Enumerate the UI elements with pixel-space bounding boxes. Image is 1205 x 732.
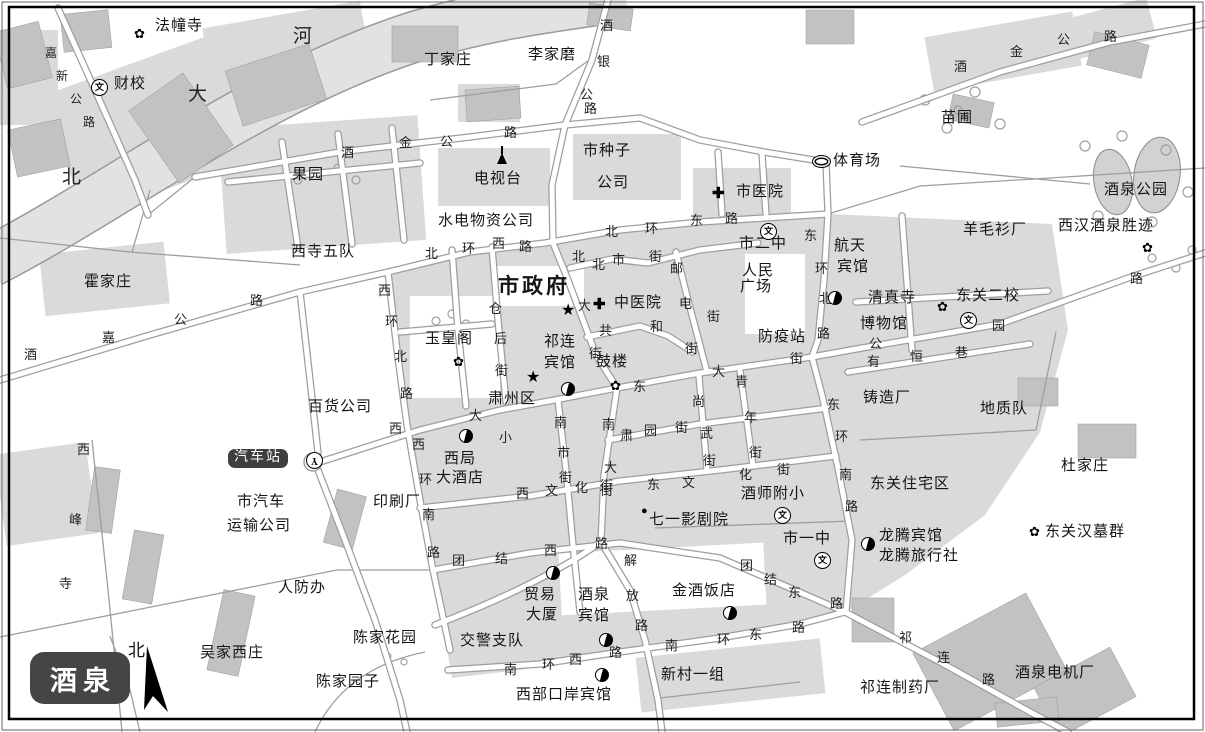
street-canghoujie-char: 街 — [495, 364, 508, 377]
street-jiujia-highway-char: 酒 — [24, 348, 37, 361]
street-xihuan-nanlu-char: 环 — [419, 473, 432, 486]
street-xidajie-char: 西 — [389, 422, 402, 435]
street-jiujin-highway-ne-char: 金 — [1010, 45, 1023, 58]
street-beidahe-river-char: 大 — [188, 85, 207, 104]
jiuquan-park-label: 酒泉公园 — [1104, 183, 1168, 198]
street-xihuan-nanlu-char: 路 — [427, 546, 440, 559]
street-xiwenhuajie-char: 化 — [575, 481, 588, 494]
epidemic-station-label: 防疫站 — [758, 330, 806, 345]
street-jiaxin-highway-char: 新 — [56, 70, 68, 82]
jinjiu-restaurant-label: 金酒饭店 — [672, 584, 736, 599]
street-shangwujie-char: 街 — [703, 454, 716, 467]
map-title: 酒泉 — [44, 659, 116, 698]
street-xihuan-nanlu-char: 南 — [422, 508, 435, 521]
street-youhengxiang-char: 恒 — [910, 350, 923, 363]
yuhuang-pavilion-flower-icon: ✿ — [453, 355, 464, 368]
hangtian-hotel-label: 宾馆 — [837, 260, 869, 275]
street-jiujin-highway-ne-char: 公 — [1057, 33, 1070, 46]
street-beihuan-donglu-char: 环 — [645, 222, 658, 235]
street-youdianjie-char: 街 — [707, 310, 720, 323]
fazhuang-temple-label: 法幢寺 — [155, 19, 203, 34]
street-xiwenhuajie-char: 文 — [545, 484, 558, 497]
museum-label: 博物馆 — [860, 317, 908, 332]
guoyuan-orchard-label: 果园 — [292, 168, 324, 183]
street-gongyuanlu-char: 公 — [869, 337, 882, 350]
tv-station-label: 电视台 — [474, 172, 522, 187]
jiuquan-motor-factory-label: 酒泉电机厂 — [1015, 666, 1095, 681]
street-nanhuan-donglu-char: 南 — [665, 639, 678, 652]
street-suyuanjie-char: 肃 — [620, 429, 633, 442]
park-lakes — [1089, 134, 1186, 218]
longteng-hotel-label: 龙腾旅行社 — [879, 549, 959, 564]
jiushi-primary-school-label: 酒师附小 — [741, 487, 805, 502]
street-jiujin-highway-w-char: 酒 — [341, 146, 354, 159]
street-nandajie-char: 南 — [602, 418, 615, 431]
city-hospital-label: 市医院 — [736, 185, 784, 200]
street-shangwujie-char: 尚 — [692, 395, 705, 408]
street-canghoujie-char: 仓 — [489, 302, 502, 315]
stadium-label: 体育场 — [833, 154, 881, 169]
street-youhengxiang-char: 巷 — [955, 346, 968, 359]
street-donghuan-nanlu-char: 南 — [839, 468, 852, 481]
hangtian-hotel-hotel-icon — [828, 291, 842, 305]
city-government-star-icon: ★ — [561, 303, 575, 319]
street-tuanjie-xilu-char: 路 — [595, 537, 608, 550]
street-beidajie-char: 大 — [578, 299, 591, 312]
street-tuanjie-xilu-char: 团 — [452, 554, 465, 567]
street-gongyuanlu-char: 路 — [1130, 272, 1143, 285]
suzhou-district-star-icon: ★ — [526, 370, 540, 386]
mosque-label: 清真寺 — [868, 291, 916, 306]
street-beishijie-char: 市 — [612, 253, 625, 266]
street-nanhuan-donglu-char: 环 — [717, 633, 730, 646]
street-beihuan-donglu-char: 北 — [605, 225, 618, 238]
no1-middle-school-label: 市一中 — [783, 532, 831, 547]
street-youdianjie-char: 电 — [679, 297, 692, 310]
city-map-jiuquan: 酒泉 北 法幢寺✿财校文丁家庄李家磨果园电视台市种子公司市医院✚体育场苗圃酒泉公… — [0, 0, 1205, 732]
street-jiujia-highway-char: 路 — [250, 294, 263, 307]
street-jiuyin-highway-char: 银 — [597, 55, 610, 68]
street-qingnianjie-char: 街 — [749, 446, 762, 459]
street-nanshijie-char: 南 — [554, 416, 567, 429]
street-jiuyin-highway-char: 酒 — [600, 19, 613, 32]
street-dongwenhuajie-char: 街 — [777, 463, 790, 476]
longteng-hotel-label: 龙腾宾馆 — [879, 529, 943, 544]
miaopu-nursery-label: 苗圃 — [941, 111, 973, 126]
xisi-wudui-label: 西寺五队 — [291, 245, 355, 260]
street-beishijie-char: 街 — [649, 250, 662, 263]
street-dongdajie-char: 大 — [712, 365, 725, 378]
street-nanhuan-donglu-char: 东 — [749, 628, 762, 641]
xiju-hotel-hotel-icon — [459, 429, 473, 443]
street-jiujia-highway-char: 公 — [174, 313, 187, 326]
street-qingnianjie-char: 青 — [735, 375, 748, 388]
street-gonghejie-char: 街 — [685, 342, 698, 355]
trade-building-hotel-icon — [546, 566, 560, 580]
street-beihuan-donglu-char: 东 — [690, 214, 703, 227]
street-qilianlu-char: 连 — [937, 651, 950, 664]
street-tuanjie-xilu-char: 结 — [495, 552, 508, 565]
compass-north-label: 北 — [128, 636, 145, 661]
street-donghuan-beilu-char: 环 — [815, 262, 828, 275]
street-beidajie-char: 北 — [572, 250, 585, 263]
street-dongdajie-char: 东 — [633, 380, 646, 393]
street-jiujin-highway-ne-char: 酒 — [954, 60, 967, 73]
street-xifengsi-char: 寺 — [59, 577, 72, 590]
street-jiujin-highway-ne-char: 路 — [1104, 30, 1117, 43]
city-transport-company-label: 市汽车 — [237, 495, 285, 510]
printing-factory-label: 印刷厂 — [373, 495, 421, 510]
street-tuanjie-donglu-char: 团 — [740, 559, 753, 572]
street-youdianjie-char: 邮 — [670, 262, 683, 275]
street-beidahe-river-char: 北 — [62, 168, 81, 187]
street-beihuan-xilu-char: 环 — [462, 242, 475, 255]
street-jiefanglu-char: 路 — [635, 619, 648, 632]
street-gongyuanlu-char: 园 — [992, 319, 1005, 332]
geology-team-label: 地质队 — [980, 402, 1028, 417]
jiushi-primary-school-school-icon: 文 — [774, 507, 791, 524]
jiuquan-hotel-label: 宾馆 — [578, 609, 610, 624]
street-nanhuan-xilu-char: 环 — [542, 658, 555, 671]
street-jiujin-highway-w-char: 公 — [440, 135, 453, 148]
street-beidahe-river-char: 河 — [293, 27, 312, 46]
chenjia-yuanzi-label: 陈家园子 — [316, 675, 380, 690]
north-arrow — [144, 646, 168, 712]
hydropower-materials-company-label: 水电物资公司 — [438, 214, 534, 229]
dongguan-no2-school-label: 东关二校 — [956, 289, 1020, 304]
street-dongwenhuajie-char: 东 — [647, 478, 660, 491]
tcm-hospital-hospital-icon: ✚ — [593, 298, 606, 313]
jiuquan-hotel-label: 酒泉 — [578, 588, 610, 603]
street-xihuan-beilu-char: 环 — [385, 315, 398, 328]
huojiazhuang-label: 霍家庄 — [84, 275, 132, 290]
street-gonghejie-char: 共 — [599, 324, 612, 337]
street-nanshijie-char: 街 — [559, 471, 572, 484]
street-suyuanjie-char: 园 — [644, 424, 657, 437]
city-transport-company-label: 运输公司 — [227, 519, 291, 534]
no2-middle-school-school-icon: 文 — [760, 223, 777, 240]
dongguan-residential-label: 东关住宅区 — [870, 477, 950, 492]
wool-sweater-factory-label: 羊毛衫厂 — [963, 223, 1027, 238]
street-qilianlu-char: 路 — [982, 673, 995, 686]
jiuquan-hotel-hotel-icon — [599, 633, 613, 647]
dujiazhuang-label: 杜家庄 — [1061, 459, 1109, 474]
street-jiuyin-highway-char: 公 — [580, 88, 593, 101]
hangtian-hotel-label: 航天 — [834, 239, 866, 254]
street-tuanjie-donglu-char: 东 — [788, 586, 801, 599]
street-xihuan-nanlu-char: 西 — [412, 438, 425, 451]
caixiao-school-label: 财校 — [114, 77, 146, 92]
yuhuang-pavilion-label: 玉皇阁 — [425, 332, 473, 347]
street-jiefanglu-char: 放 — [626, 589, 639, 602]
street-xihuan-beilu-char: 西 — [378, 284, 391, 297]
peoples-square-label: 广场 — [740, 280, 772, 295]
traffic-police-label: 交警支队 — [460, 634, 524, 649]
xihan-jiuquan-site-label: 西汉酒泉胜迹 — [1058, 219, 1154, 234]
qilian-hotel-hotel-icon — [561, 382, 575, 396]
street-beihuan-xilu-char: 西 — [492, 237, 505, 250]
bus-station-label: 汽车站 — [228, 449, 288, 468]
trade-building-label: 大厦 — [526, 608, 558, 623]
department-store-label: 百货公司 — [308, 400, 372, 415]
dongguan-han-tombs-flower-icon: ✿ — [1029, 525, 1040, 538]
street-donghuan-nanlu-char: 环 — [835, 430, 848, 443]
qilian-hotel-label: 宾馆 — [544, 356, 576, 371]
street-nanhuan-donglu-char: 路 — [792, 621, 805, 634]
mosque-flower-icon: ✿ — [937, 300, 948, 313]
street-xifengsi-char: 西 — [77, 443, 90, 456]
xiju-hotel-label: 大酒店 — [436, 471, 484, 486]
qiyi-theater-label: 七一影剧院 — [649, 513, 729, 528]
seed-company-label: 公司 — [597, 176, 629, 191]
western-port-hotel-hotel-icon — [595, 668, 609, 682]
street-qilianlu-char: 祁 — [899, 631, 912, 644]
street-gonghejie-char: 和 — [650, 320, 663, 333]
drum-tower-flower-icon: ✿ — [610, 379, 621, 392]
trade-building-label: 贸易 — [524, 588, 556, 603]
xihan-jiuquan-site-flower-icon: ✿ — [1142, 241, 1153, 254]
qiyi-theater-dot-icon: ● — [641, 506, 648, 517]
chenjia-garden-label: 陈家花园 — [353, 631, 417, 646]
seed-company-label: 市种子 — [583, 144, 631, 159]
street-tuanjie-xilu-char: 西 — [544, 544, 557, 557]
bus-station-bus-icon: Y — [306, 452, 323, 469]
street-suyuanjie-char: 街 — [675, 421, 688, 434]
peoples-square-label: 人民 — [742, 264, 774, 279]
street-nanshijie-char: 市 — [557, 446, 570, 459]
street-donghuan-beilu-char: 东 — [804, 229, 817, 242]
street-beihuan-donglu-char: 路 — [725, 212, 738, 225]
street-jiujin-highway-w-char: 路 — [504, 126, 517, 139]
qilian-pharma-label: 祁连制药厂 — [860, 681, 940, 696]
street-jiaxin-highway-char: 路 — [83, 116, 95, 128]
street-xiwenhuajie-char: 西 — [516, 487, 529, 500]
street-beihuan-xilu-char: 北 — [425, 247, 438, 260]
lijiamo-label: 李家磨 — [528, 48, 576, 63]
street-nandajie-char: 大 — [604, 461, 617, 474]
fazhuang-temple-flower-icon: ✿ — [134, 27, 145, 40]
civil-defense-office-label: 人防办 — [278, 581, 326, 596]
street-youhengxiang-char: 有 — [867, 355, 880, 368]
dongguan-han-tombs-label: 东关汉墓群 — [1045, 525, 1125, 540]
street-xiwenhuajie-char: 街 — [600, 479, 613, 492]
wujiaxizhuang-label: 吴家西庄 — [200, 646, 264, 661]
drum-tower-label: 鼓楼 — [596, 355, 628, 370]
xincun-yizu-label: 新村一组 — [661, 668, 725, 683]
dingjiazhuang-label: 丁家庄 — [424, 53, 472, 68]
no1-middle-school-school-icon: 文 — [814, 552, 831, 569]
jinjiu-restaurant-hotel-icon — [723, 606, 737, 620]
street-dongwenhuajie-char: 文 — [682, 476, 695, 489]
street-nanhuan-xilu-char: 西 — [569, 653, 582, 666]
western-port-hotel-label: 西部口岸宾馆 — [516, 688, 612, 703]
street-jiaxin-highway-char: 公 — [70, 93, 82, 105]
longteng-hotel-hotel-icon — [861, 537, 875, 551]
street-jiujin-highway-w-char: 金 — [399, 136, 412, 149]
tcm-hospital-label: 中医院 — [614, 296, 662, 311]
street-xidajie-char: 大 — [469, 409, 482, 422]
street-xihuan-beilu-char: 路 — [400, 387, 413, 400]
street-donghuan-nanlu-char: 东 — [827, 398, 840, 411]
street-donghuan-beilu-char: 路 — [817, 327, 830, 340]
tv-station-tower-icon — [496, 146, 508, 164]
qilian-hotel-label: 祁连 — [544, 335, 576, 350]
street-nanhuan-xilu-char: 路 — [609, 646, 622, 659]
city-government-label: 市政府 — [498, 276, 570, 297]
street-tuanjie-donglu-char: 路 — [830, 597, 843, 610]
street-dongdajie-char: 街 — [790, 352, 803, 365]
street-xihuan-beilu-char: 北 — [394, 350, 407, 363]
street-qingnianjie-char: 年 — [744, 411, 757, 424]
street-dongwenhuajie-char: 化 — [739, 468, 752, 481]
street-jiuyin-highway-char: 路 — [584, 102, 597, 115]
suzhou-district-label: 肃州区 — [488, 392, 536, 407]
street-jiefanglu-char: 解 — [624, 554, 637, 567]
street-xifengsi-char: 峰 — [69, 513, 82, 526]
city-hospital-hospital-icon: ✚ — [712, 187, 725, 202]
no2-middle-school-label: 市二中 — [739, 237, 787, 252]
stadium-stadium-icon — [812, 155, 831, 168]
street-donghuan-nanlu-char: 路 — [845, 500, 858, 513]
caixiao-school-school-icon: 文 — [91, 79, 108, 96]
dongguan-no2-school-school-icon: 文 — [960, 312, 977, 329]
street-nanhuan-xilu-char: 南 — [504, 663, 517, 676]
street-jiaxin-highway-char: 嘉 — [45, 47, 57, 59]
street-beihuan-xilu-char: 路 — [519, 240, 532, 253]
xiju-hotel-label: 西局 — [444, 452, 476, 467]
street-beishijie-char: 北 — [592, 258, 605, 271]
street-shangwujie-char: 武 — [700, 427, 713, 440]
street-canghoujie-char: 后 — [494, 332, 507, 345]
street-tuanjie-donglu-char: 结 — [764, 573, 777, 586]
street-xiaoxiang-lane-char: 小 — [499, 431, 512, 444]
map-title-badge: 酒泉 — [30, 652, 130, 704]
foundry-label: 铸造厂 — [863, 391, 911, 406]
street-jiujia-highway-char: 嘉 — [102, 331, 115, 344]
